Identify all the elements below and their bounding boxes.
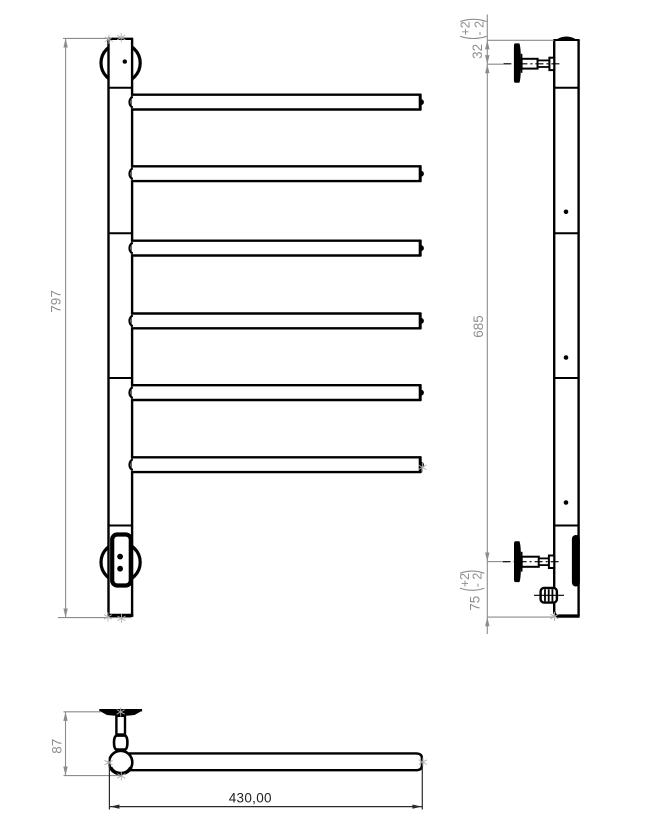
svg-text:797: 797 (49, 290, 64, 313)
svg-text:87: 87 (49, 739, 64, 754)
svg-text:- 2: - 2 (473, 21, 487, 36)
svg-text:+2: +2 (458, 21, 472, 35)
svg-text:430,00: 430,00 (229, 791, 272, 806)
svg-text:75: 75 (467, 596, 482, 611)
svg-text:32: 32 (470, 44, 485, 59)
svg-text:685: 685 (471, 315, 486, 338)
svg-text:- 2: - 2 (470, 573, 484, 588)
